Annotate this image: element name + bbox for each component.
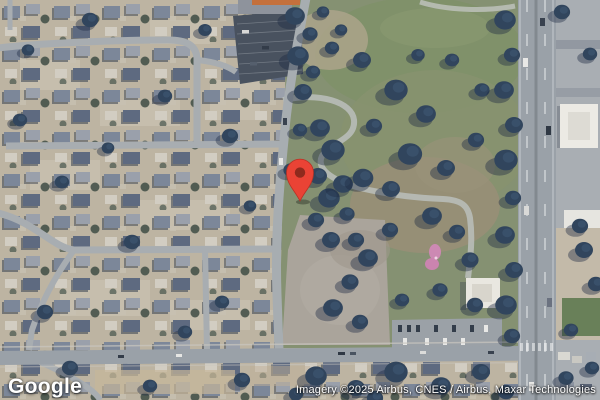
map-canvas[interactable]: Google Imagery ©2025 Airbus, CNES / Airb… (0, 0, 600, 400)
park-parking-lot (392, 318, 502, 350)
orange-roof-building (252, 0, 300, 5)
pin-inner-dot (295, 167, 305, 177)
highway-road (518, 0, 556, 400)
pin-shadow (296, 200, 310, 205)
google-logo[interactable]: Google (8, 376, 82, 397)
imagery-attribution: Imagery ©2025 Airbus, CNES / Airbus, Max… (296, 385, 596, 396)
satellite-imagery (0, 0, 600, 400)
